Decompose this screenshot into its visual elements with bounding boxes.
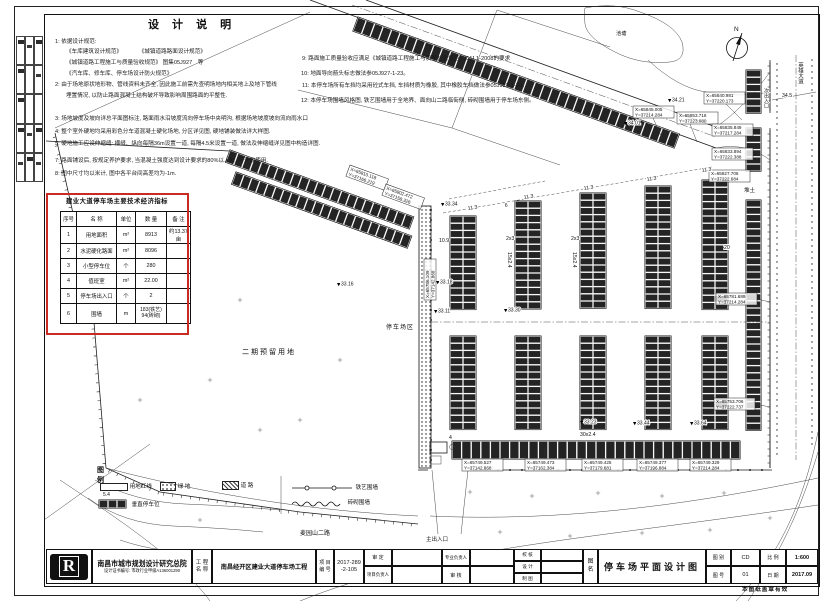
signature-cell — [25, 124, 34, 153]
dimension: 2x3 — [571, 236, 579, 242]
signature-cell — [16, 65, 25, 94]
dimension: 10.9 — [439, 238, 449, 244]
project-label-cell: 工 程名 称 — [192, 549, 212, 584]
titleblock-empty-cell — [541, 573, 583, 584]
svg-text:X=65749.377: X=65749.377 — [639, 460, 667, 465]
draft-label: 制 图 — [514, 573, 541, 584]
frontage-road-edge — [46, 141, 229, 151]
iron-fence-swatch — [292, 484, 354, 492]
signature-cell — [34, 94, 43, 123]
spot-elevation: 33.16 — [337, 281, 354, 287]
svg-text:X=65749.473: X=65749.473 — [527, 460, 555, 465]
label-line: 图 — [587, 559, 593, 567]
pond-label: 池塘 — [616, 29, 626, 37]
svg-text:34.21: 34.21 — [672, 97, 685, 103]
signature-cell — [16, 36, 25, 65]
label-line: 编 号 — [319, 567, 330, 573]
value: 1:600 — [795, 555, 809, 561]
col-header: 序号 — [61, 212, 77, 227]
coordinate-label: X=65833.894 Y=37222.388 — [712, 148, 753, 160]
green-swatch — [160, 482, 176, 491]
signature-cell — [34, 65, 43, 94]
svg-text:X=65786.109: X=65786.109 — [425, 270, 430, 298]
cell-qty: 22.00 — [136, 274, 167, 289]
legend-item-green: 绿 地 — [160, 482, 190, 491]
pm-label: 项目负责人 — [364, 566, 392, 584]
svg-text:X=65749.329: X=65749.329 — [692, 460, 720, 465]
svg-text:Y=37223.080: Y=37223.080 — [679, 119, 707, 124]
design-label: 设 计 — [514, 561, 541, 573]
site-boundary-tickline — [53, 133, 418, 526]
table-row: 4 值班室 m² 22.00 — [61, 274, 191, 289]
company-logo: R — [50, 554, 88, 580]
brick-wall-swatch — [292, 499, 346, 507]
coordinate-label: X=65835.849 Y=37217.284 — [712, 124, 753, 136]
svg-text:33.34: 33.34 — [445, 201, 458, 207]
parking-row — [515, 201, 541, 309]
project-name: 南昌经开区建业大道停车场工程 — [221, 562, 308, 571]
parking-row — [580, 193, 606, 308]
cell-qty: 183(铁艺) 94(砖砌) — [136, 304, 167, 324]
east-road-name: 英雄大道 — [797, 61, 804, 86]
drawing-name-label-cell: 图名 — [583, 549, 598, 584]
legend-item-road: 道 路 — [222, 481, 253, 490]
table-row: 3 小型停车位 个 280 — [61, 259, 191, 274]
cell-no: 6 — [61, 304, 77, 324]
phase2-label: 二期预留用地 — [242, 347, 296, 356]
cell-name: 小型停车位 — [77, 259, 117, 274]
legend-item-stall: 垂直停车位 — [98, 499, 160, 510]
company-cert: 设计证书编号: 市政行业甲级A136001290 — [96, 568, 187, 574]
col-header: 名 称 — [77, 212, 117, 227]
dimension: 11.3 — [523, 193, 534, 201]
approve-label: 审 定 — [364, 549, 392, 566]
parking-row — [353, 17, 680, 148]
check-label: 审 核 — [442, 566, 470, 584]
legend-item-brick-wall: 砖砌围墙 — [292, 498, 370, 507]
dimension: 20 — [724, 245, 730, 251]
redline-swatch — [100, 483, 128, 491]
cell-remark — [167, 244, 191, 259]
label-line: 工 程 — [196, 560, 209, 567]
parking-row — [452, 441, 740, 459]
driveway-edge — [461, 470, 468, 534]
svg-text:34.01: 34.01 — [628, 120, 641, 126]
road-swatch — [222, 481, 239, 490]
svg-text:Y=37162.384: Y=37162.384 — [527, 466, 555, 471]
date-value: 2017.09 — [786, 566, 818, 584]
svg-text:Y=37142.868: Y=37142.868 — [464, 466, 492, 471]
spot-elevation: 33.34 — [441, 201, 458, 207]
stamp-note: 本图纸盖章有效 — [742, 585, 788, 593]
label: 图 号 — [713, 572, 724, 579]
spot-elevation: 33.30 — [504, 307, 521, 313]
coordinate-label: X=65827.706 Y=37222.684 — [709, 170, 750, 182]
north-arrow: N — [727, 26, 748, 61]
col-header: 单位 — [117, 212, 136, 227]
svg-text:33.44: 33.44 — [637, 420, 650, 426]
parking-row — [515, 336, 541, 430]
table-row: 5 停车场出入口 个 2 — [61, 289, 191, 304]
col-header: 备 注 — [167, 212, 191, 227]
signature-cell — [16, 153, 25, 182]
main-entry-label: 主出入口 — [426, 535, 448, 543]
stall-dim: 5.4 — [103, 492, 110, 498]
cell-no: 1 — [61, 227, 77, 244]
parking-row — [645, 186, 671, 308]
cell-qty: 280 — [136, 259, 167, 274]
dimension: 6 — [504, 203, 508, 209]
label: 校 核 — [522, 552, 532, 558]
label: 设 计 — [522, 564, 532, 570]
cell-qty: 2 — [136, 289, 167, 304]
titleblock-empty-cell — [392, 549, 442, 566]
proof-label: 校 核 — [514, 549, 541, 561]
spot-elevation: 33.44 — [633, 420, 650, 426]
parcel-line — [497, 10, 610, 47]
date-label: 日 期 — [760, 566, 786, 584]
legend-label: 绿 地 — [178, 484, 191, 490]
cell-name: 围墙 — [77, 304, 117, 324]
dimension: 2x3 — [506, 236, 514, 242]
coordinate-label: X=65749.527 Y=37142.868 — [462, 459, 503, 471]
spot-elevation: 33.18 — [436, 279, 453, 285]
svg-text:33.64: 33.64 — [694, 420, 707, 426]
company-name: 南昌市城市规划设计研究总院 — [97, 559, 186, 568]
coordinate-label: X=65781.689 Y=37214.284 — [716, 293, 757, 305]
cat-value: CD — [731, 549, 760, 566]
legend-label: 砖砌围墙 — [348, 500, 370, 506]
coordinate-label: X=65749.425 Y=37179.681 — [582, 459, 623, 471]
parking-row — [702, 336, 728, 430]
label: 项目负责人 — [367, 572, 389, 578]
legend-label: 垂直停车位 — [132, 502, 160, 508]
label: 审 定 — [372, 554, 383, 561]
label: 比 例 — [767, 554, 778, 561]
drawing-name-cell: 停车场平面设计图 — [598, 549, 706, 584]
coordinate-label: X=65840.981 Y=37220.173 — [704, 92, 745, 104]
svg-text:33.16: 33.16 — [341, 281, 354, 287]
parking-zone-label: 停车场区 — [386, 323, 414, 331]
spot-elevation: 33.11 — [434, 308, 450, 314]
dimension: 15x2.4 — [506, 252, 512, 268]
svg-text:X=65853.716: X=65853.716 — [679, 113, 707, 118]
cell-unit: 个 — [117, 289, 136, 304]
sheet-label: 图 号 — [706, 566, 731, 584]
sheet-value: 01 — [731, 566, 760, 584]
svg-text:X=65749.527: X=65749.527 — [464, 460, 492, 465]
parking-row — [450, 336, 476, 430]
parking-row — [450, 216, 476, 310]
legend-item-iron-fence: 铁艺围墙 — [292, 483, 378, 492]
project-no-line: -2-105 — [337, 567, 361, 574]
cell-no: 3 — [61, 259, 77, 274]
signature-cell — [25, 36, 34, 65]
scale-value: 1:600 — [786, 549, 818, 566]
dimension: 30x2.4 — [580, 432, 596, 438]
coordinate-label: X=65845.005 Y=37214.284 — [633, 106, 674, 118]
svg-text:N: N — [734, 26, 739, 33]
south-road-name: 麦园山二路 — [300, 529, 330, 537]
svg-text:X=65749.425: X=65749.425 — [584, 460, 612, 465]
cell-remark: 约13.37亩 — [167, 227, 191, 244]
cell-remark — [167, 304, 191, 324]
svg-text:X=65840.981: X=65840.981 — [706, 93, 734, 98]
svg-text:Y=37214.284: Y=37214.284 — [635, 113, 663, 118]
cell-unit: m — [117, 304, 136, 324]
drawing-name: 停车场平面设计图 — [604, 560, 700, 573]
label: 制 图 — [522, 576, 532, 582]
coordinate-label: X=65749.329 Y=37214.284 — [690, 459, 731, 471]
svg-text:Y=37222.737: Y=37222.737 — [716, 405, 744, 410]
value: 2017.09 — [792, 572, 812, 578]
svg-text:Y=37222.684: Y=37222.684 — [711, 177, 739, 182]
coordinate-label: X=65810.118 Y=37166.219 — [346, 165, 389, 190]
legend-label: 铁艺围墙 — [356, 485, 378, 491]
table-header-row: 序号 名 称 单位 数 量 备 注 — [61, 212, 191, 227]
cell-remark — [167, 289, 191, 304]
east-wall-ticks — [768, 130, 771, 468]
signature-cell — [16, 94, 25, 123]
signature-cell — [34, 124, 43, 153]
cell-name: 水泥硬化路面 — [77, 244, 117, 259]
cell-name: 停车场出入口 — [77, 289, 117, 304]
svg-text:33.23: 33.23 — [584, 419, 597, 425]
coordinate-label: X=65749.473 Y=37162.384 — [525, 459, 566, 471]
dimension-line — [443, 167, 712, 213]
sub-entry-label: 次出入口 — [763, 87, 769, 109]
cat-label: 图 别 — [706, 549, 731, 566]
cell-name: 用地面积 — [77, 227, 117, 244]
dimension: 15x2.4 — [571, 252, 577, 268]
svg-text:X=65845.005: X=65845.005 — [635, 107, 663, 112]
titleblock-empty-cell — [470, 549, 514, 566]
label-line: 名 — [587, 567, 593, 575]
cell-qty-line2: 94(砖砌) — [137, 314, 165, 320]
dimension: 11.3 — [583, 184, 594, 192]
titleblock-empty-cell — [470, 566, 514, 584]
company-logo-cell: R — [46, 549, 92, 584]
parking-row — [645, 336, 671, 430]
svg-text:Y=37142.868: Y=37142.868 — [431, 270, 436, 298]
legend-item-redline: 用地红线 — [100, 482, 152, 491]
signature-cell — [34, 36, 43, 65]
cell-unit: m² — [117, 274, 136, 289]
svg-text:X=65753.706: X=65753.706 — [716, 399, 744, 404]
svg-text:Y=37222.388: Y=37222.388 — [714, 155, 742, 160]
table-row: 1 用地面积 m² 8913 约13.37亩 — [61, 227, 191, 244]
road-edge-extension — [55, 12, 310, 128]
cell-no: 4 — [61, 274, 77, 289]
svg-text:Y=37179.681: Y=37179.681 — [584, 466, 612, 471]
label: 图 别 — [713, 554, 724, 561]
east-fence-dots — [811, 59, 812, 444]
spot-elevation: 34.21 — [668, 97, 685, 103]
coordinate-label: X=65802.472 Y=37158.326 — [382, 184, 425, 209]
signature-cell — [34, 153, 43, 182]
spot-elevation: 33.64 — [690, 420, 707, 426]
logo-letter: R — [59, 556, 79, 577]
cell-unit: m² — [117, 227, 136, 244]
parking-row — [746, 200, 761, 430]
company-cell: 南昌市城市规划设计研究总院 设计证书编号: 市政行业甲级A136001290 — [92, 549, 192, 584]
legend-label: 用地红线 — [130, 484, 152, 490]
cell-no: 2 — [61, 244, 77, 259]
cell-qty: 8096 — [136, 244, 167, 259]
dimension: 11.3 — [646, 175, 657, 183]
label: 日 期 — [767, 572, 778, 579]
svg-text:X=65827.706: X=65827.706 — [711, 171, 739, 176]
svg-text:X=65781.689: X=65781.689 — [718, 294, 746, 299]
svg-text:33.18: 33.18 — [440, 279, 453, 285]
dimension: 34.5 — [782, 93, 792, 99]
coordinate-label: X=65753.706 Y=37222.737 — [714, 398, 755, 410]
road-width-dim-line — [772, 92, 816, 100]
project-no-cell: 2017-289-2-105 — [334, 549, 364, 584]
value: CD — [741, 555, 749, 561]
cell-qty: 8913 — [136, 227, 167, 244]
parcel-line — [452, 128, 560, 165]
cell-unit: m² — [117, 244, 136, 259]
cell-remark — [167, 259, 191, 274]
titleblock-empty-cell — [392, 566, 442, 584]
coordinate-label: X=65749.377 Y=37196.884 — [637, 459, 678, 471]
titleblock-empty-cell — [541, 549, 583, 561]
cell-remark — [167, 274, 191, 289]
svg-text:33.11: 33.11 — [438, 308, 450, 314]
scale-label: 比 例 — [760, 549, 786, 566]
cell-no: 5 — [61, 289, 77, 304]
road-survey-marks — [198, 490, 772, 558]
green-strip — [419, 206, 431, 468]
svg-text:X=65833.894: X=65833.894 — [714, 149, 742, 154]
driveway-edge — [432, 470, 438, 534]
duty-room — [430, 442, 447, 453]
svg-text:X=65835.849: X=65835.849 — [714, 125, 742, 130]
col-header: 数 量 — [136, 212, 167, 227]
parking-row — [746, 70, 761, 113]
titleblock-empty-cell — [541, 561, 583, 573]
pile-label: 堆土 — [744, 186, 756, 194]
parking-row — [580, 336, 606, 430]
dimension: 11.3 — [467, 204, 478, 212]
east-fence-dots — [776, 63, 777, 454]
indicators-title: 建业大道停车场主要技术经济指标 — [66, 196, 191, 205]
stall-swatch — [98, 499, 130, 510]
svg-text:Y=37220.173: Y=37220.173 — [706, 99, 734, 104]
cell-unit: 个 — [117, 259, 136, 274]
label-line: 项 目 — [319, 560, 330, 566]
table-row: 2 水泥硬化路面 m² 8096 — [61, 244, 191, 259]
drawing-sheet: 池塘 — [0, 0, 830, 601]
project-no-line: 2017-289 — [337, 560, 361, 567]
coordinate-label: X=65853.716 Y=37223.080 — [677, 112, 718, 124]
project-no-label-cell: 项 目编 号 — [316, 549, 334, 584]
svg-text:33.30: 33.30 — [508, 307, 521, 313]
signature-cell — [25, 153, 34, 182]
south-road-edge — [430, 478, 818, 517]
signature-cell — [16, 124, 25, 153]
lead-label: 专业负责人 — [442, 549, 470, 566]
coordinate-label: X=65786.109 Y=37142.868 — [424, 259, 436, 300]
signature-strip — [16, 36, 43, 182]
value: 01 — [742, 572, 748, 578]
indicators-table: 建业大道停车场主要技术经济指标 序号 名 称 单位 数 量 备 注 1 用地面积… — [60, 196, 191, 324]
project-name-cell: 南昌经开区建业大道停车场工程 — [212, 549, 316, 584]
svg-text:Y=37196.884: Y=37196.884 — [639, 466, 667, 471]
label: 专业负责人 — [445, 555, 467, 561]
svg-text:Y=37214.284: Y=37214.284 — [692, 466, 720, 471]
svg-text:Y=37214.284: Y=37214.284 — [718, 300, 746, 305]
label: 审 核 — [450, 572, 461, 579]
signature-cell — [25, 94, 34, 123]
legend-label: 道 路 — [241, 483, 254, 489]
svg-text:Y=37217.284: Y=37217.284 — [714, 131, 742, 136]
table-row: 6 围墙 m 183(铁艺) 94(砖砌) — [61, 304, 191, 324]
dimension: 4 — [449, 435, 452, 441]
signature-cell — [25, 65, 34, 94]
label-line: 名 称 — [196, 567, 209, 574]
pond-outline — [585, 6, 684, 63]
cell-name: 值班室 — [77, 274, 117, 289]
